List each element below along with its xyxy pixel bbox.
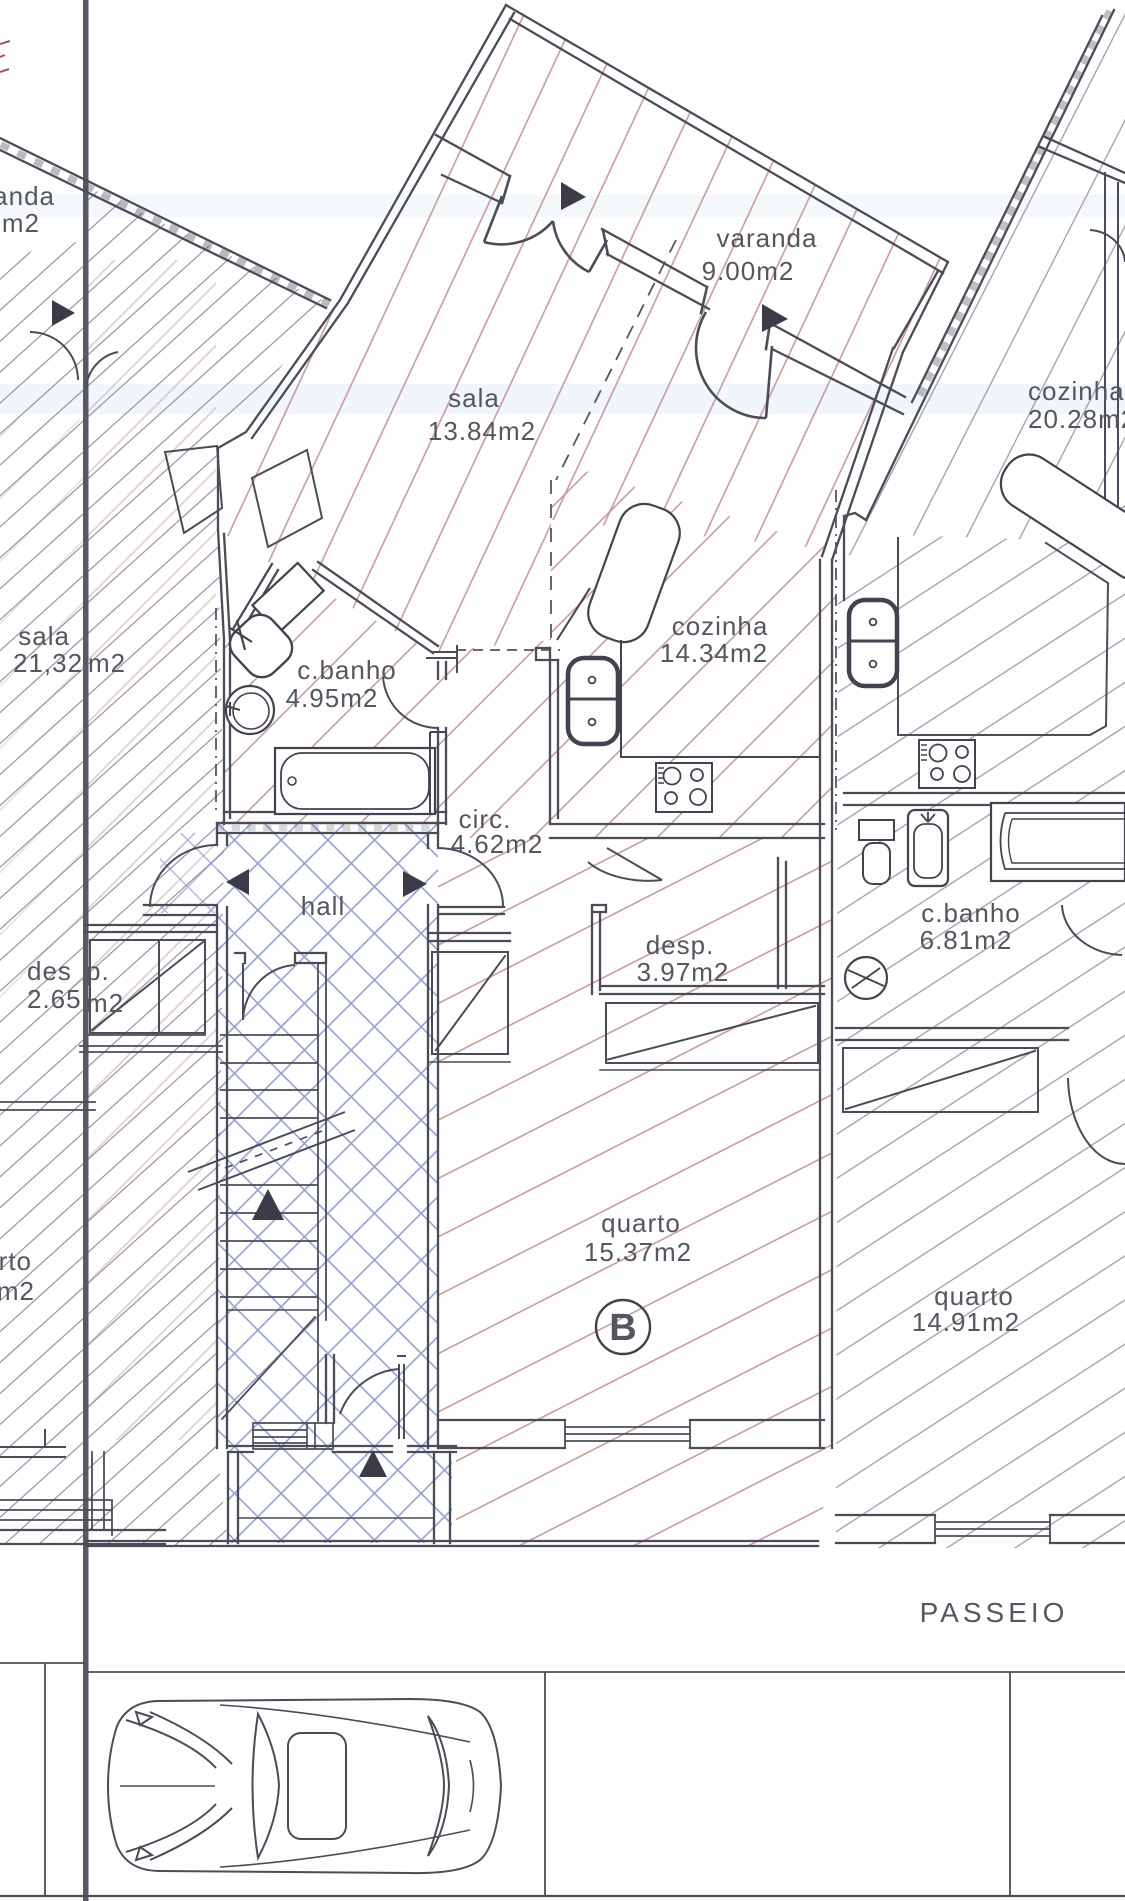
svg-text:c.banho: c.banho	[297, 655, 397, 685]
svg-text:9.00m2: 9.00m2	[702, 256, 795, 286]
svg-text:anda: anda	[0, 181, 55, 211]
svg-text:4.95m2: 4.95m2	[286, 683, 379, 713]
svg-text:m2: m2	[88, 648, 126, 678]
svg-text:cozinha: cozinha	[1028, 376, 1125, 406]
svg-text:PASSEIO: PASSEIO	[920, 1597, 1069, 1628]
svg-text:15.37m2: 15.37m2	[584, 1237, 692, 1267]
svg-text:14.91m2: 14.91m2	[912, 1307, 1020, 1337]
svg-text:m2: m2	[86, 988, 124, 1018]
svg-text:c.banho: c.banho	[921, 898, 1021, 928]
svg-text:13.84m2: 13.84m2	[428, 416, 536, 446]
svg-text:desp.: desp.	[646, 930, 715, 960]
svg-text:sala: sala	[448, 383, 500, 413]
svg-text:21,32: 21,32	[13, 648, 83, 678]
svg-text:varanda: varanda	[717, 223, 818, 253]
svg-text:B: B	[609, 1307, 636, 1349]
svg-text:6.81m2: 6.81m2	[920, 925, 1013, 955]
svg-text:cozinha: cozinha	[672, 611, 769, 641]
svg-text:p.: p.	[86, 956, 110, 986]
svg-text:4.62m2: 4.62m2	[451, 829, 544, 859]
svg-text:m2: m2	[0, 1276, 35, 1306]
svg-text:3.97m2: 3.97m2	[637, 957, 730, 987]
svg-text:des: des	[27, 956, 72, 986]
svg-text:6m2: 6m2	[0, 208, 40, 238]
svg-text:rto: rto	[0, 1246, 32, 1276]
svg-text:hall: hall	[301, 891, 345, 921]
svg-text:quarto: quarto	[601, 1208, 681, 1238]
svg-text:14.34m2: 14.34m2	[660, 638, 768, 668]
svg-text:20.28m2: 20.28m2	[1028, 404, 1125, 434]
svg-text:2.65: 2.65	[27, 984, 82, 1014]
svg-text:sala: sala	[18, 621, 70, 651]
